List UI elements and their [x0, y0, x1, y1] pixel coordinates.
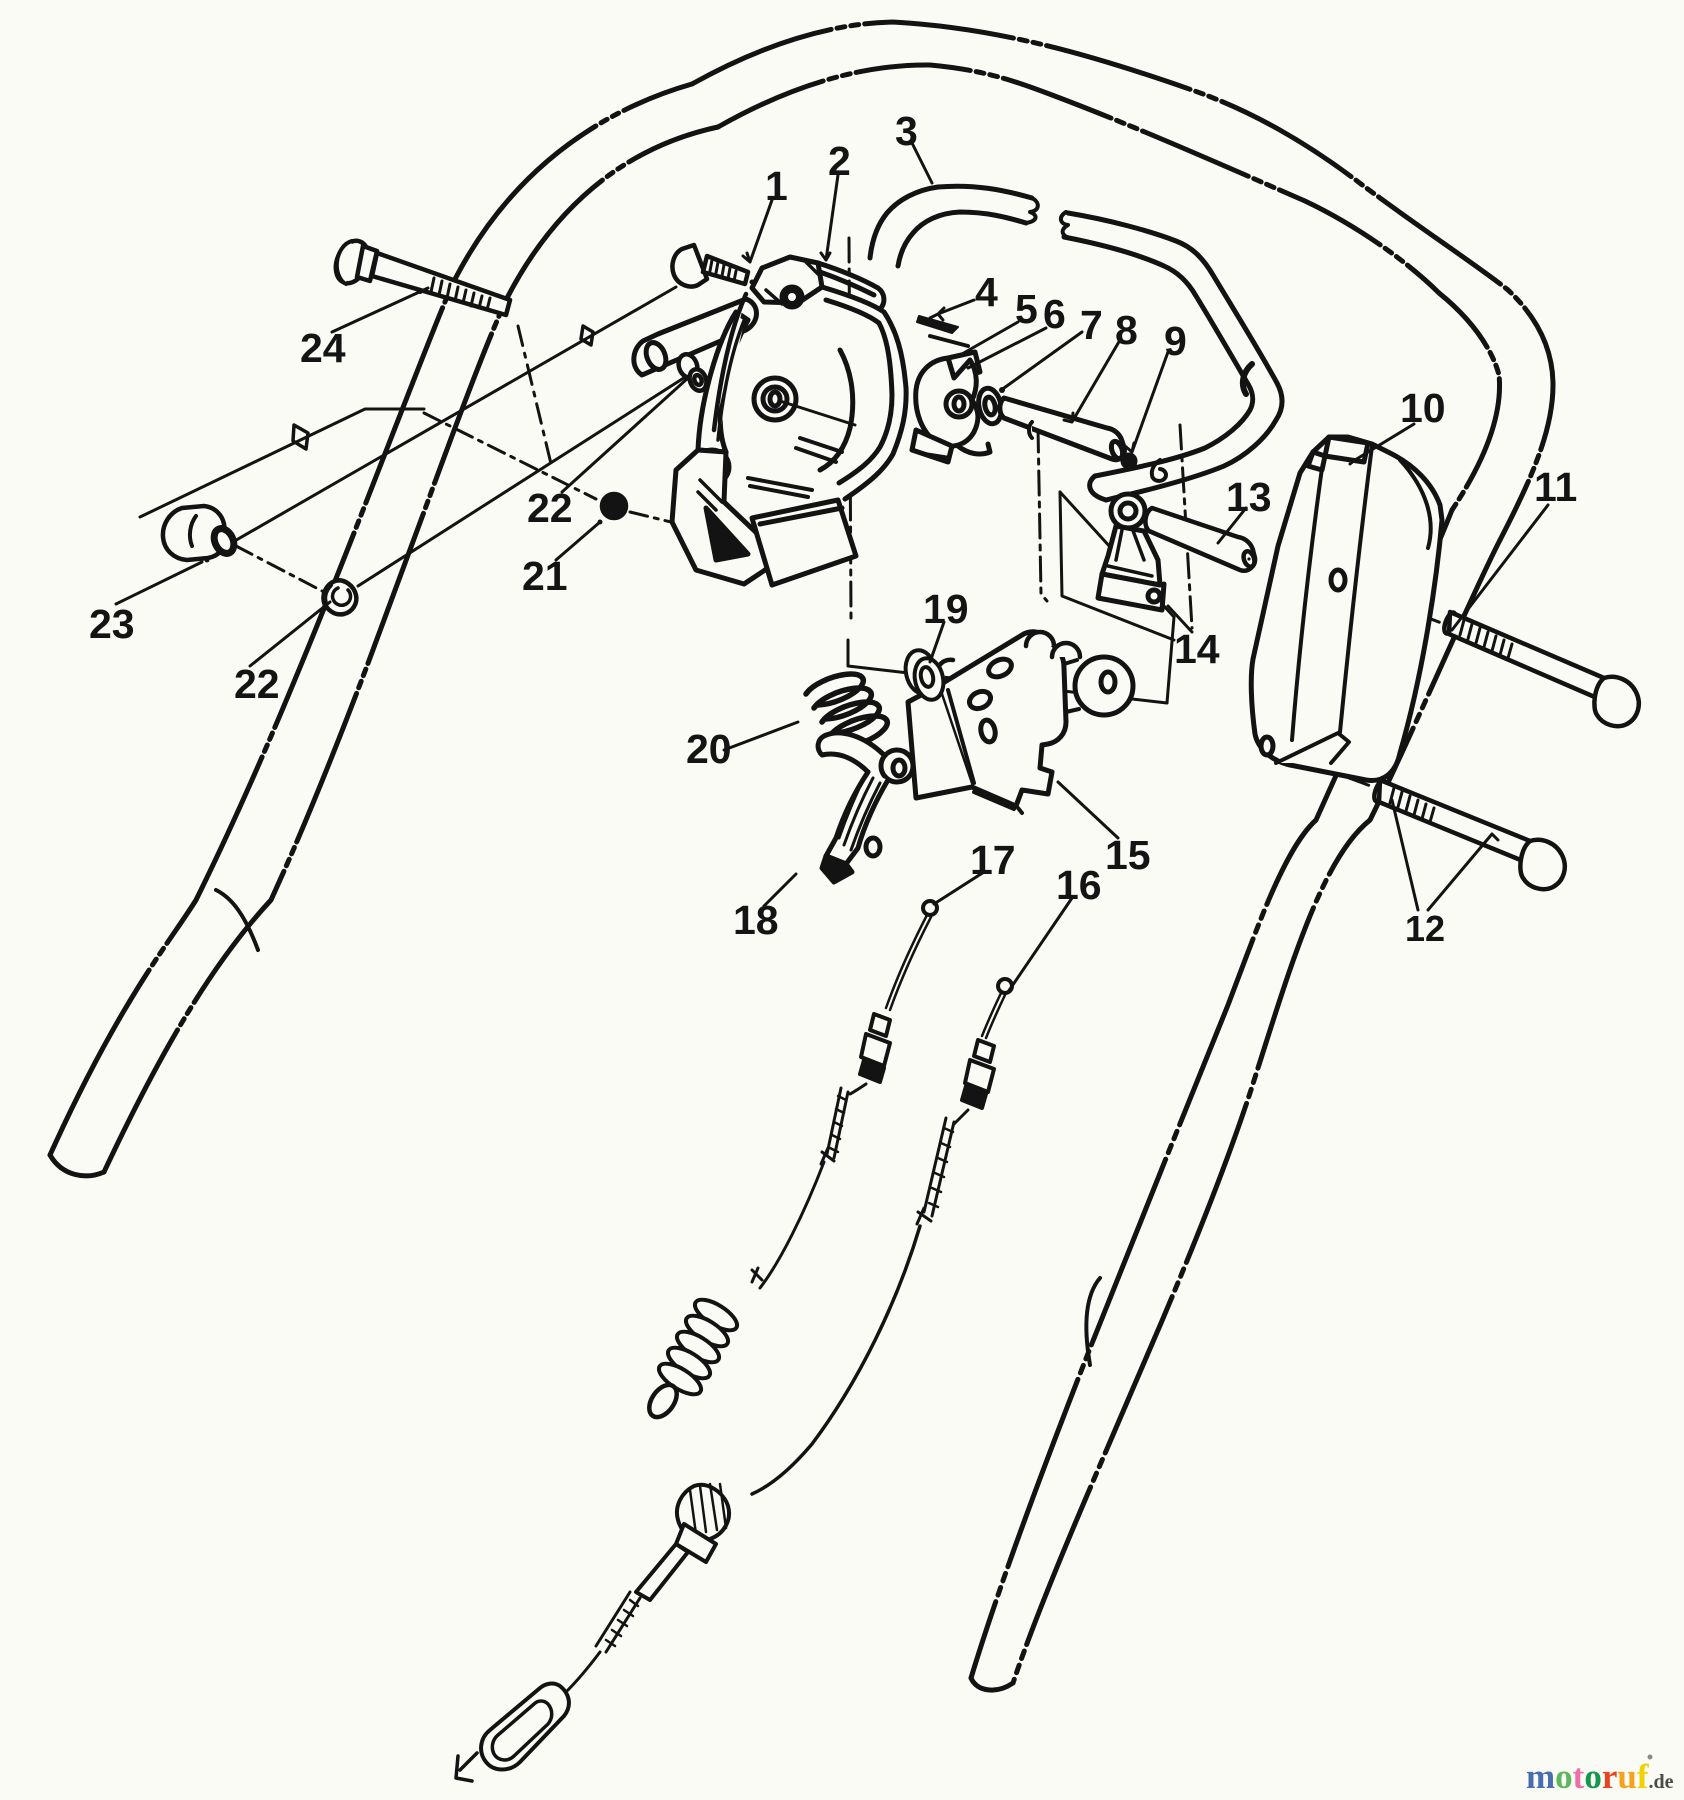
svg-text:2: 2 — [828, 138, 851, 184]
svg-text:24: 24 — [300, 325, 346, 371]
svg-text:13: 13 — [1226, 474, 1272, 520]
svg-text:20: 20 — [686, 726, 732, 772]
svg-text:22: 22 — [527, 485, 573, 531]
svg-text:4: 4 — [975, 269, 998, 315]
svg-text:16: 16 — [1056, 862, 1102, 908]
svg-text:19: 19 — [923, 586, 969, 632]
svg-text:21: 21 — [522, 553, 568, 599]
svg-text:5: 5 — [1015, 286, 1038, 332]
svg-text:15: 15 — [1105, 832, 1151, 878]
svg-text:1: 1 — [765, 163, 788, 209]
svg-text:7: 7 — [1080, 302, 1103, 348]
svg-text:17: 17 — [970, 837, 1016, 883]
svg-text:22: 22 — [234, 661, 280, 707]
svg-text:11: 11 — [1534, 464, 1577, 510]
svg-text:12: 12 — [1405, 908, 1445, 949]
svg-text:23: 23 — [89, 601, 135, 647]
svg-text:3: 3 — [895, 108, 918, 154]
svg-text:9: 9 — [1164, 318, 1187, 364]
svg-text:6: 6 — [1043, 291, 1066, 337]
svg-text:18: 18 — [733, 897, 779, 943]
svg-text:8: 8 — [1115, 307, 1138, 353]
svg-text:10: 10 — [1400, 385, 1446, 431]
svg-text:14: 14 — [1174, 626, 1220, 672]
